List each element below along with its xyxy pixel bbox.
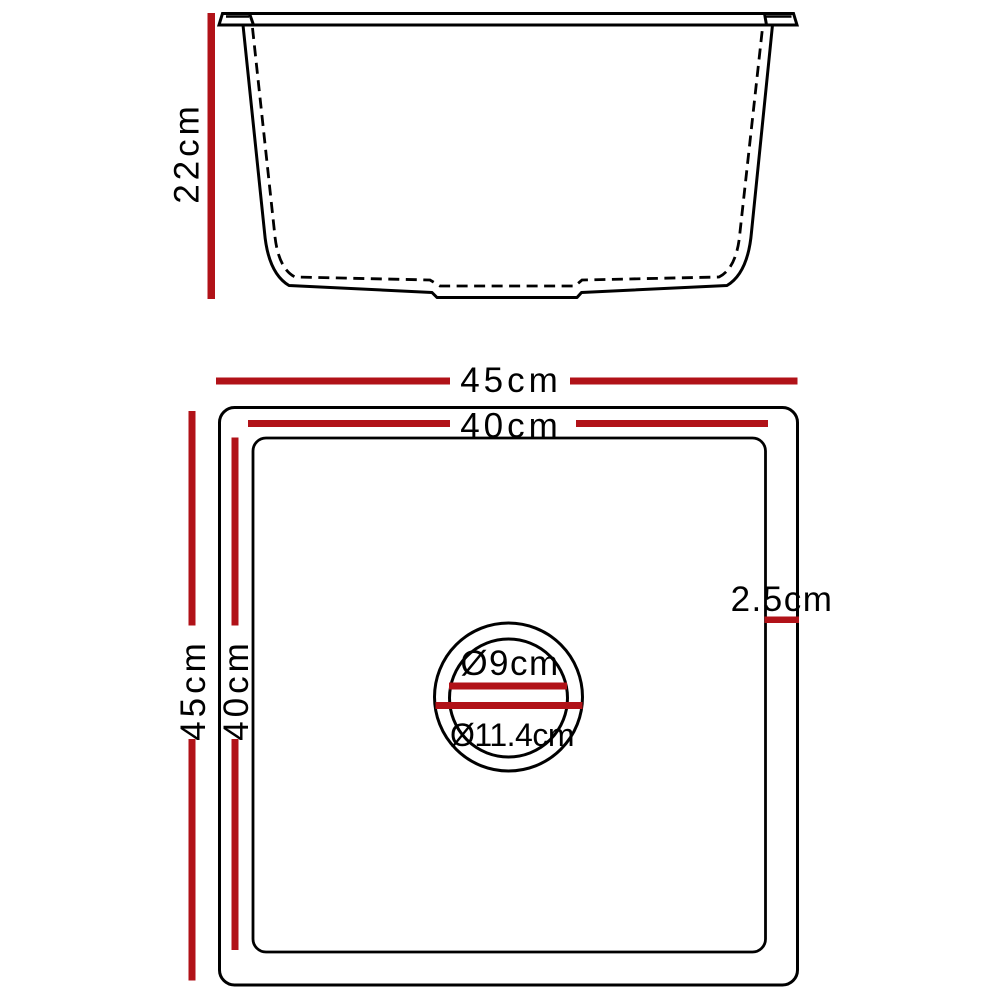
svg-text:45cm: 45cm (460, 361, 562, 400)
svg-text:2.5cm: 2.5cm (731, 580, 834, 619)
svg-text:40cm: 40cm (217, 639, 256, 741)
svg-text:22cm: 22cm (168, 102, 207, 204)
svg-text:40cm: 40cm (460, 407, 562, 446)
svg-text:45cm: 45cm (174, 639, 213, 741)
svg-text:Ø9cm: Ø9cm (460, 644, 559, 683)
svg-text:Ø11.4cm: Ø11.4cm (450, 717, 574, 753)
